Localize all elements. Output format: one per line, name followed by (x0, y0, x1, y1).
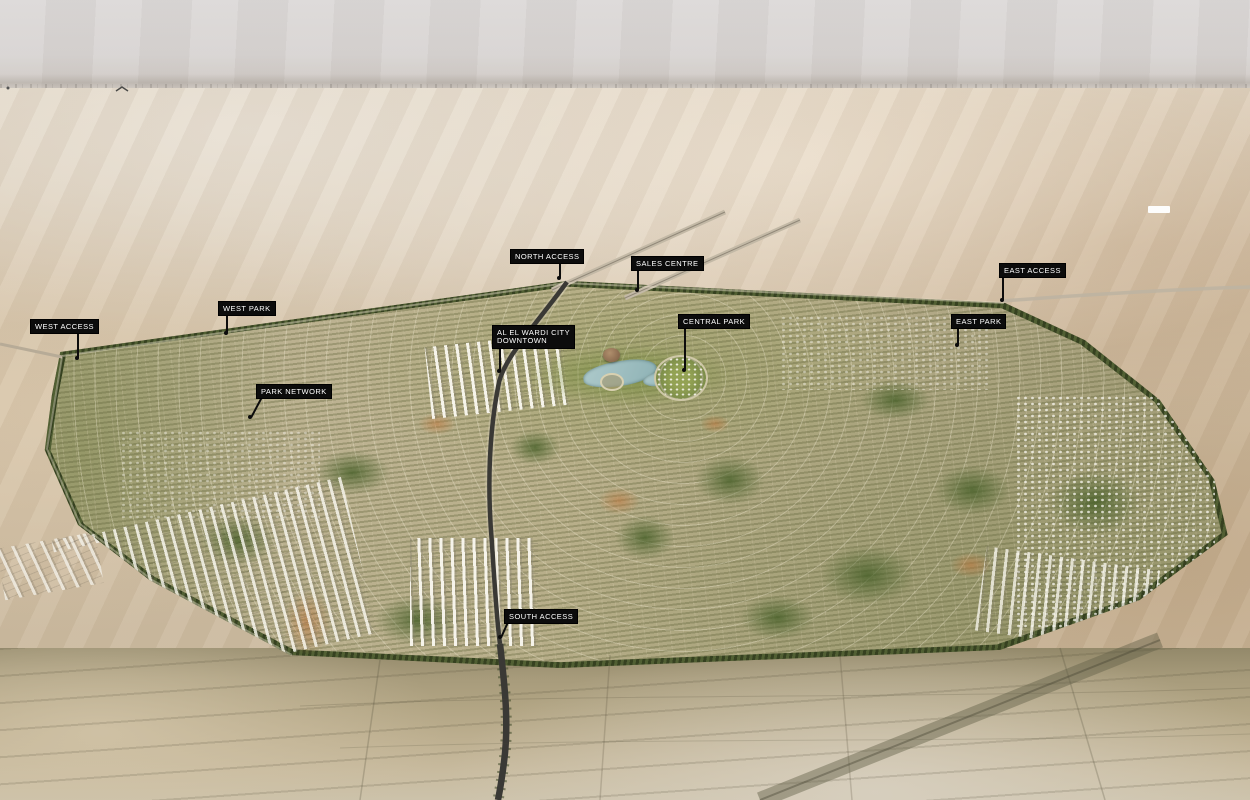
label-tag: EAST PARK (951, 314, 1006, 329)
park-green-patch (935, 465, 1010, 515)
label-tag: SALES CENTRE (631, 256, 704, 271)
anchor-dot (248, 415, 252, 419)
anchor-dot (557, 276, 561, 280)
park-ring-plaza (600, 373, 624, 391)
dome-building (603, 348, 620, 362)
park-green-patch (820, 545, 915, 605)
label-tag: CENTRAL PARK (678, 314, 750, 329)
leader-line (684, 327, 686, 370)
anchor-dot (955, 343, 959, 347)
dirt-patch (598, 487, 640, 515)
leader-line (499, 347, 501, 371)
anchor-dot (498, 635, 502, 639)
label-tag: WEST PARK (218, 301, 276, 316)
park-green-patch (695, 455, 765, 505)
farmland-strips (0, 648, 1250, 800)
central-park-circle (654, 355, 708, 401)
anchor-dot (1000, 298, 1004, 302)
masterplan-render: WEST ACCESS WEST PARK NORTH ACCESS SALES… (0, 0, 1250, 800)
leader-line (77, 332, 79, 358)
city-masterplan (40, 275, 1230, 670)
anchor-dot (497, 369, 501, 373)
park-green-patch (510, 430, 560, 465)
park-green-patch (615, 515, 675, 560)
label-tag: PARK NETWORK (256, 384, 332, 399)
dirt-patch (700, 415, 730, 433)
anchor-dot (224, 331, 228, 335)
anchor-dot (682, 368, 686, 372)
leader-line (637, 269, 639, 290)
label-tag: SOUTH ACCESS (504, 609, 578, 624)
campus-buildings (410, 538, 538, 646)
label-tag: EAST ACCESS (999, 263, 1066, 278)
anchor-dot (75, 356, 79, 360)
west-housing (120, 430, 320, 520)
label-line2: DOWNTOWN (497, 337, 570, 346)
leader-line (1002, 276, 1004, 300)
label-tag: WEST ACCESS (30, 319, 99, 334)
park-green-patch (740, 595, 815, 640)
white-artifact (1148, 206, 1170, 213)
label-tag: AL EL WARDI CITY DOWNTOWN (492, 325, 575, 349)
label-tag: NORTH ACCESS (510, 249, 584, 264)
anchor-dot (635, 288, 639, 292)
